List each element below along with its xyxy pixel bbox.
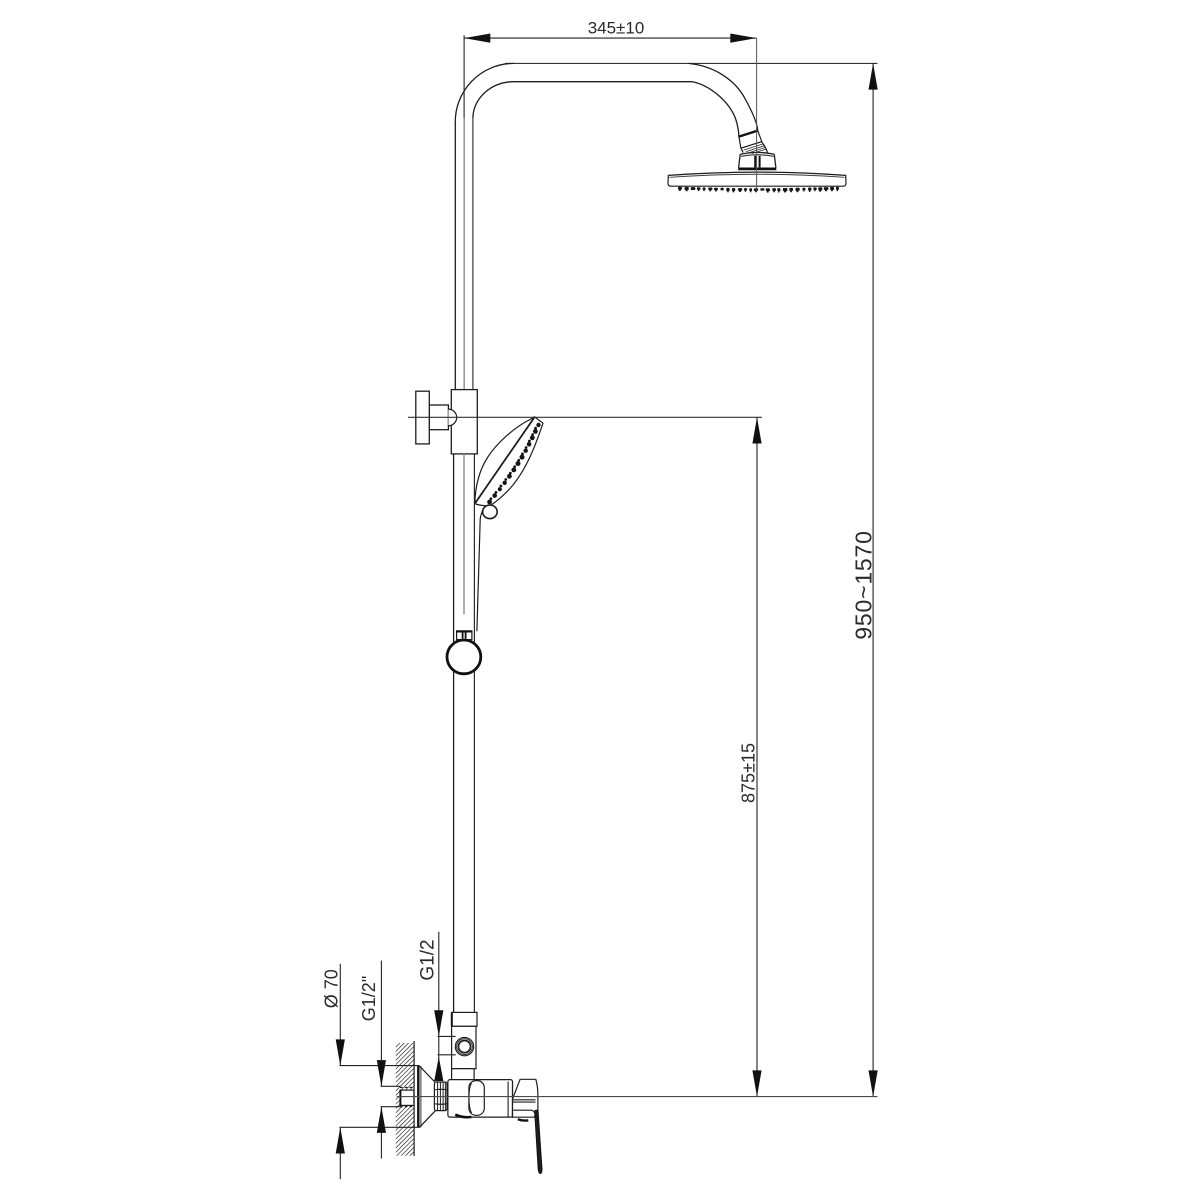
- svg-text:Ø 70: Ø 70: [321, 969, 341, 1008]
- svg-text:345±10: 345±10: [588, 19, 645, 38]
- svg-text:G1/2: G1/2: [418, 939, 439, 980]
- svg-text:G1/2": G1/2": [359, 976, 379, 1021]
- svg-text:875±15: 875±15: [739, 743, 759, 803]
- svg-text:950~1570: 950~1570: [851, 530, 877, 639]
